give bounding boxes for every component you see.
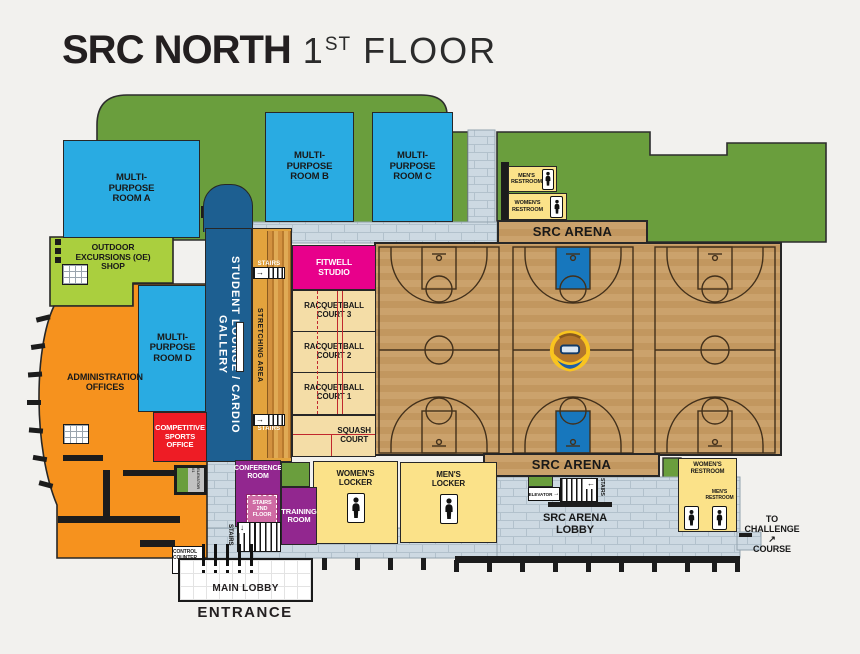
lobby-stairs-icon: ← xyxy=(560,478,598,502)
green-court-yard-conference xyxy=(281,462,310,487)
src-arena-bottom-band: SRC ARENA xyxy=(483,453,660,477)
room-student-lounge-bump xyxy=(203,184,253,232)
room-mens-restroom-nw: MEN'SRESTROOM xyxy=(508,166,557,192)
room-womens-restroom-nw: WOMEN'SRESTROOM xyxy=(508,193,567,220)
window-grid-upper xyxy=(62,264,88,285)
src-arena-top-band: SRC ARENA xyxy=(497,220,648,244)
main-lobby-stairs-label: STAIRS xyxy=(227,524,233,546)
mens-restroom-se-person-icon xyxy=(712,506,727,530)
stretching-area-label: STRETCHING AREA xyxy=(255,308,263,383)
stairs-lower: → STAIRS xyxy=(245,414,293,432)
room-fitwell-studio: FITWELLSTUDIO xyxy=(292,245,376,290)
elevator-1-cab: ELEVATOR #1 xyxy=(188,468,204,492)
floorplan-canvas: SRC NORTH 1ST FLOOR xyxy=(0,0,860,654)
room-racquetball-court-3: RACQUETBALLCOURT 3 xyxy=(293,291,375,332)
src-arena-lobby-label: SRC ARENALOBBY xyxy=(520,512,630,537)
room-racquetball-court-2: RACQUETBALLCOURT 2 xyxy=(293,332,375,373)
entrance-label: ENTRANCE xyxy=(160,604,330,622)
lobby-stairs-label: STAIRS xyxy=(599,478,605,496)
womens-locker-person-icon xyxy=(347,493,365,523)
window-grid-lower xyxy=(63,424,89,444)
elevator-1-label: ELEVATOR #1 xyxy=(191,468,201,492)
lounge-counter xyxy=(236,322,244,372)
room-racquetball-court-1: RACQUETBALLCOURT 1 xyxy=(293,373,375,413)
challenge-course-note: TO CHALLENGE ↗ COURSE xyxy=(726,514,818,554)
mascot-logo xyxy=(544,326,596,378)
challenge-arrow-icon: ↗ xyxy=(726,534,818,544)
elevator-1: ELEVATOR #1 xyxy=(177,468,204,492)
main-lobby-label: MAIN LOBBY xyxy=(212,583,278,594)
stairs-2nd-floor-box: STAIRS2NDFLOOR xyxy=(247,495,277,523)
lobby-elevator-box: ELEVATOR → xyxy=(528,487,560,501)
womens-restroom-se-person-icon xyxy=(684,506,699,530)
room-mens-locker: MEN'SLOCKER xyxy=(400,462,497,543)
src-arena-bottom-label: SRC ARENA xyxy=(532,458,612,473)
room-multipurpose-d: MULTI-PURPOSEROOM D xyxy=(138,285,207,412)
mens-restroom-nw-person-icon xyxy=(542,169,554,190)
room-womens-locker: WOMEN'SLOCKER xyxy=(313,461,398,544)
room-squash-court: SQUASHCOURT xyxy=(292,415,376,457)
room-training: TRAININGROOM xyxy=(281,487,317,545)
room-multipurpose-c: MULTI-PURPOSEROOM C xyxy=(372,112,453,222)
mens-restroom-se-label: MEN'SRESTROOM xyxy=(703,490,736,501)
main-lobby: MAIN LOBBY xyxy=(178,558,313,602)
lobby-vertical-circulation: ELEVATOR → ← STAIRS xyxy=(528,476,612,506)
main-lobby-stairs-icon: ↓ xyxy=(237,522,281,552)
lobby-elevator-label: ELEVATOR xyxy=(529,492,553,497)
elevator-1-green xyxy=(177,468,188,492)
stairs-upper: STAIRS → xyxy=(245,261,293,279)
lobby-green-box xyxy=(528,476,553,487)
room-competitive-sports-office: COMPETITIVESPORTSOFFICE xyxy=(153,412,207,462)
racquetball-courts-block: RACQUETBALLCOURT 3 RACQUETBALLCOURT 2 RA… xyxy=(292,290,376,415)
womens-restroom-nw-person-icon xyxy=(550,196,563,218)
floorplan-base-layer xyxy=(0,0,860,654)
src-arena-top-label: SRC ARENA xyxy=(533,225,613,240)
room-administration-label: ADMINISTRATIONOFFICES xyxy=(45,372,165,392)
elevator-arrow-icon: → xyxy=(553,491,559,497)
room-multipurpose-b: MULTI-PURPOSEROOM B xyxy=(265,112,354,222)
room-multipurpose-a: MULTI-PURPOSEROOM A xyxy=(63,140,200,238)
mens-locker-person-icon xyxy=(440,494,458,524)
